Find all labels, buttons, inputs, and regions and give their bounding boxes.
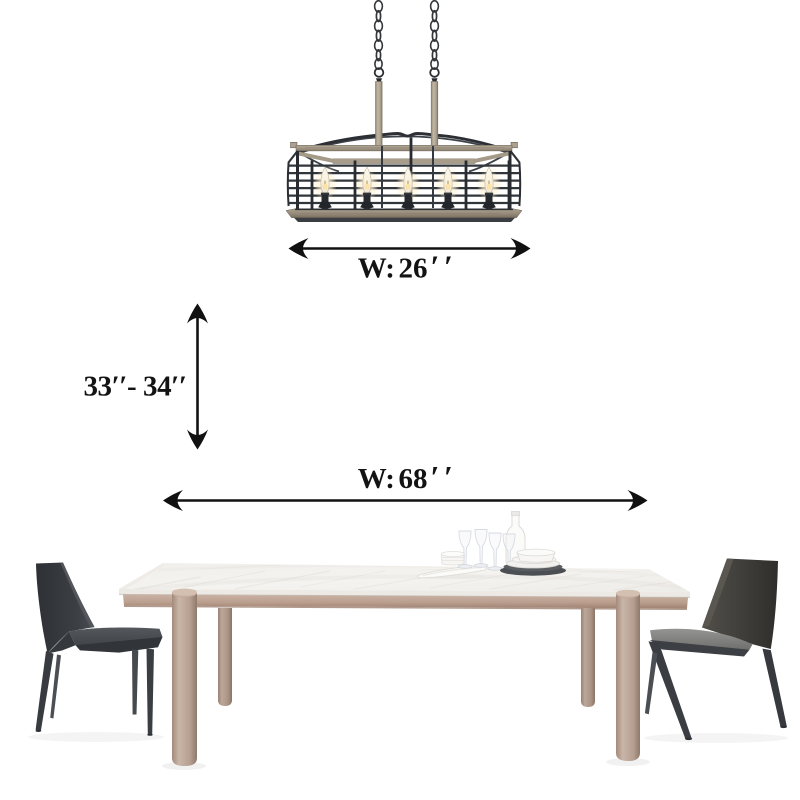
svg-text:W:: W:: [358, 463, 395, 495]
svg-text:68: 68: [399, 463, 428, 495]
svg-text:′′: ′′: [431, 459, 458, 495]
svg-text:26: 26: [399, 253, 428, 285]
svg-text:33′′- 34′′: 33′′- 34′′: [84, 371, 187, 403]
svg-text:′′: ′′: [431, 249, 458, 285]
svg-text:W:: W:: [358, 253, 395, 285]
